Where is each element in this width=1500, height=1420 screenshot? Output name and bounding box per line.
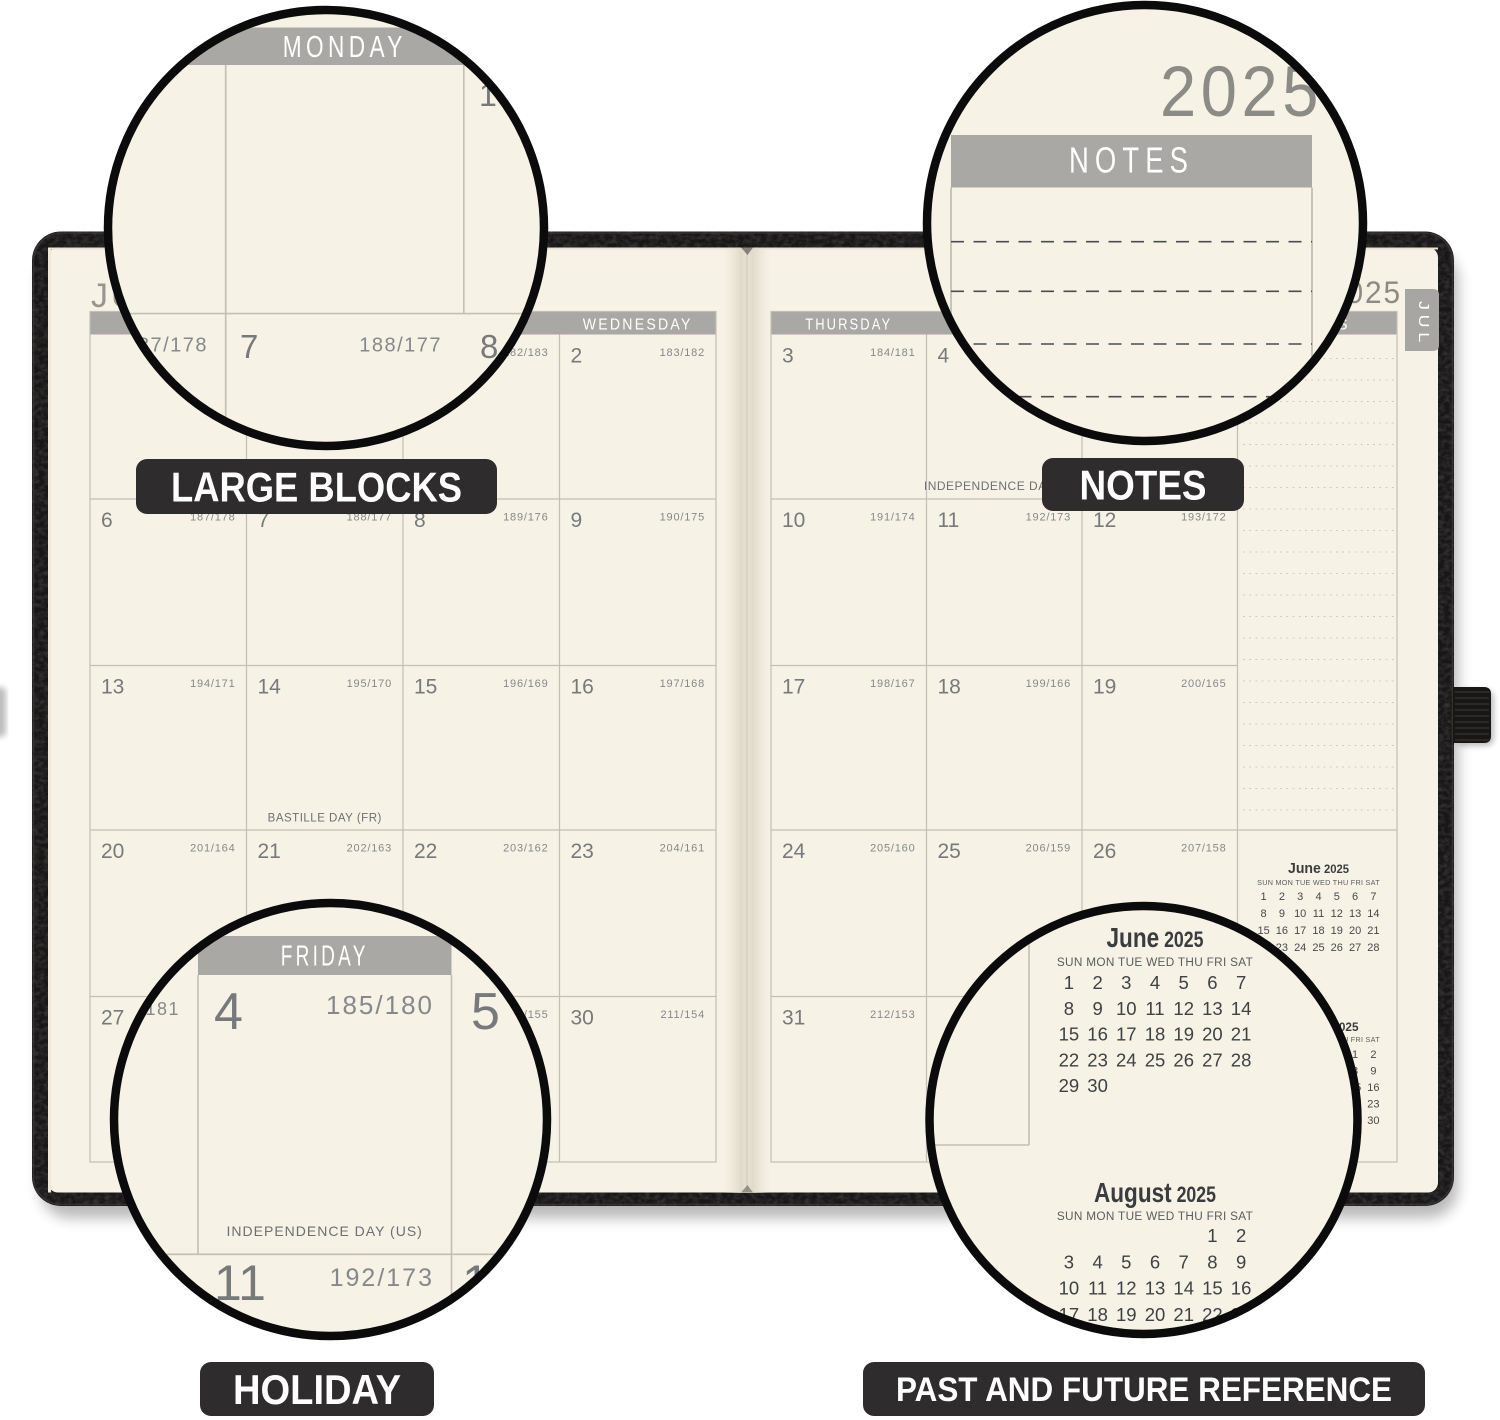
svg-text:21: 21 (1231, 1024, 1252, 1045)
svg-text:25: 25 (938, 840, 961, 863)
svg-text:NOTES: NOTES (1080, 462, 1207, 509)
svg-text:201/164: 201/164 (190, 843, 235, 855)
svg-text:193/172: 193/172 (1181, 512, 1226, 524)
svg-text:28: 28 (1231, 1049, 1252, 1070)
svg-text:14: 14 (1367, 908, 1379, 920)
svg-text:1: 1 (1207, 1225, 1217, 1246)
svg-text:June 2025: June 2025 (1107, 922, 1204, 953)
svg-text:8: 8 (1261, 908, 1267, 920)
svg-text:18: 18 (938, 676, 961, 699)
svg-text:21: 21 (258, 840, 281, 863)
svg-text:11: 11 (938, 509, 960, 532)
svg-text:4: 4 (214, 983, 243, 1041)
svg-text:27: 27 (1202, 1049, 1223, 1070)
svg-text:SUN MON TUE WED THU FRI SAT: SUN MON TUE WED THU FRI SAT (1257, 878, 1380, 887)
svg-text:1: 1 (1064, 972, 1074, 993)
svg-text:11: 11 (1313, 908, 1324, 920)
svg-text:10: 10 (1116, 998, 1137, 1019)
svg-text:21: 21 (1173, 1304, 1194, 1325)
svg-text:24: 24 (782, 840, 806, 863)
svg-text:19: 19 (1331, 925, 1343, 937)
svg-text:12: 12 (1331, 908, 1343, 920)
svg-text:12: 12 (1116, 1278, 1137, 1299)
svg-text:2: 2 (1236, 1225, 1246, 1246)
svg-text:3: 3 (782, 345, 794, 368)
svg-text:INDEPENDENCE DAY (US): INDEPENDENCE DAY (US) (227, 1223, 423, 1239)
svg-text:13: 13 (1202, 998, 1223, 1019)
svg-text:195/170: 195/170 (347, 678, 392, 690)
svg-text:15: 15 (1202, 1278, 1223, 1299)
svg-text:19: 19 (1093, 676, 1116, 699)
svg-text:189/176: 189/176 (503, 512, 548, 524)
svg-text:WEDNESDAY: WEDNESDAY (583, 317, 693, 334)
svg-text:22: 22 (1059, 1049, 1080, 1070)
svg-text:192/173: 192/173 (330, 1264, 434, 1292)
svg-text:17: 17 (782, 676, 805, 699)
svg-text:18: 18 (1145, 1024, 1166, 1045)
svg-text:11: 11 (1088, 1278, 1107, 1299)
svg-text:MONDAY: MONDAY (283, 29, 407, 64)
svg-text:16: 16 (571, 676, 594, 699)
svg-text:6: 6 (1352, 891, 1358, 903)
svg-text:5: 5 (1121, 1251, 1131, 1272)
svg-text:13: 13 (1145, 1278, 1166, 1299)
svg-text:6: 6 (1150, 1251, 1160, 1272)
svg-text:PAST AND FUTURE REFERENCE: PAST AND FUTURE REFERENCE (896, 1371, 1392, 1409)
svg-text:16: 16 (1231, 1278, 1252, 1299)
svg-text:2: 2 (1370, 1049, 1376, 1061)
svg-text:10: 10 (782, 509, 805, 532)
svg-text:184/181: 184/181 (870, 347, 915, 359)
svg-text:23: 23 (571, 840, 594, 863)
svg-text:10: 10 (1294, 908, 1306, 920)
svg-text:16: 16 (1367, 1082, 1379, 1094)
svg-text:197/168: 197/168 (660, 678, 705, 690)
svg-text:26: 26 (1093, 840, 1116, 863)
svg-text:8: 8 (1207, 1251, 1217, 1272)
svg-text:7: 7 (1370, 891, 1376, 903)
svg-text:FRIDAY: FRIDAY (281, 941, 369, 973)
svg-text:196/169: 196/169 (503, 678, 548, 690)
svg-text:SUN MON TUE WED THU FRI SAT: SUN MON TUE WED THU FRI SAT (1057, 1211, 1253, 1223)
svg-text:3: 3 (1121, 972, 1131, 993)
svg-text:4: 4 (1092, 1251, 1102, 1272)
svg-text:3: 3 (1297, 891, 1303, 903)
svg-text:21: 21 (1367, 925, 1379, 937)
svg-text:207/158: 207/158 (1181, 843, 1226, 855)
svg-text:25: 25 (1312, 942, 1324, 954)
svg-text:203/162: 203/162 (503, 843, 548, 855)
svg-text:202/163: 202/163 (347, 843, 392, 855)
svg-text:4: 4 (1150, 972, 1160, 993)
svg-text:7: 7 (240, 328, 258, 365)
svg-text:212/153: 212/153 (870, 1009, 915, 1021)
svg-text:11: 11 (1145, 998, 1164, 1019)
svg-text:14: 14 (1231, 998, 1252, 1019)
svg-text:20: 20 (101, 840, 124, 863)
svg-text:3: 3 (1064, 1251, 1074, 1272)
svg-text:194/171: 194/171 (190, 678, 235, 690)
svg-text:22: 22 (414, 840, 437, 863)
svg-text:30: 30 (1087, 1075, 1108, 1096)
svg-text:28: 28 (1367, 942, 1379, 954)
svg-text:205/160: 205/160 (870, 843, 915, 855)
svg-text:24: 24 (1294, 942, 1306, 954)
svg-text:18: 18 (1087, 1304, 1108, 1325)
svg-text:206/159: 206/159 (1026, 843, 1071, 855)
svg-text:198/167: 198/167 (870, 678, 915, 690)
svg-text:5: 5 (471, 983, 500, 1041)
svg-text:27: 27 (101, 1007, 124, 1030)
svg-text:31: 31 (782, 1007, 805, 1030)
svg-text:8: 8 (1064, 998, 1074, 1019)
svg-text:25: 25 (1145, 1049, 1166, 1070)
svg-text:9: 9 (571, 509, 583, 532)
svg-text:16: 16 (1276, 925, 1288, 937)
svg-text:7: 7 (1179, 1251, 1189, 1272)
svg-text:7: 7 (1236, 972, 1246, 993)
svg-text:2: 2 (571, 345, 583, 368)
svg-text:6: 6 (101, 509, 113, 532)
svg-text:1: 1 (1261, 891, 1267, 903)
svg-text:30: 30 (1367, 1115, 1379, 1127)
svg-text:17: 17 (1116, 1024, 1137, 1045)
svg-text:16: 16 (1087, 1024, 1108, 1045)
svg-text:183/182: 183/182 (660, 347, 705, 359)
svg-text:9: 9 (1370, 1066, 1376, 1078)
svg-text:5: 5 (1179, 972, 1189, 993)
svg-text:LARGE BLOCKS: LARGE BLOCKS (171, 464, 462, 511)
svg-text:19: 19 (1173, 1024, 1194, 1045)
svg-text:5: 5 (1334, 891, 1340, 903)
svg-text:20: 20 (1145, 1304, 1166, 1325)
svg-text:26: 26 (1173, 1049, 1194, 1070)
svg-text:12: 12 (1173, 998, 1194, 1019)
svg-text:2: 2 (1279, 891, 1285, 903)
svg-text:14: 14 (1173, 1278, 1194, 1299)
svg-text:6: 6 (1207, 972, 1217, 993)
svg-text:199/166: 199/166 (1026, 678, 1071, 690)
svg-text:190/175: 190/175 (660, 512, 705, 524)
svg-text:30: 30 (571, 1007, 594, 1030)
svg-text:23: 23 (1087, 1049, 1108, 1070)
svg-text:17: 17 (1294, 925, 1306, 937)
svg-text:192/173: 192/173 (1026, 512, 1071, 524)
svg-text:4: 4 (1315, 891, 1321, 903)
svg-text:15: 15 (1059, 1024, 1080, 1045)
svg-text:NOTES: NOTES (1069, 140, 1194, 181)
svg-text:191/174: 191/174 (870, 512, 915, 524)
svg-text:13: 13 (101, 676, 124, 699)
svg-text:24: 24 (1116, 1049, 1137, 1070)
svg-text:13: 13 (1349, 908, 1361, 920)
svg-text:185/180: 185/180 (326, 990, 434, 1020)
svg-text:2: 2 (1092, 972, 1102, 993)
svg-text:23: 23 (1367, 1099, 1379, 1111)
svg-text:26: 26 (1331, 942, 1343, 954)
svg-text:JUL: JUL (1415, 301, 1432, 347)
svg-text:4: 4 (938, 345, 950, 368)
svg-text:12: 12 (1093, 509, 1116, 532)
svg-text:August 2025: August 2025 (1094, 1177, 1216, 1208)
svg-text:204/161: 204/161 (660, 843, 705, 855)
svg-text:211/154: 211/154 (660, 1009, 705, 1021)
svg-text:9: 9 (1279, 908, 1285, 920)
svg-text:188/177: 188/177 (359, 334, 442, 356)
svg-text:14: 14 (258, 676, 282, 699)
svg-text:10: 10 (1059, 1278, 1080, 1299)
svg-text:HOLIDAY: HOLIDAY (233, 1366, 401, 1413)
svg-text:29: 29 (1059, 1075, 1080, 1096)
svg-text:20: 20 (1349, 925, 1361, 937)
svg-text:BASTILLE DAY (FR): BASTILLE DAY (FR) (268, 813, 382, 825)
svg-text:18: 18 (1312, 925, 1324, 937)
svg-text:19: 19 (1116, 1304, 1137, 1325)
svg-text:SUN MON TUE WED THU FRI SAT: SUN MON TUE WED THU FRI SAT (1057, 957, 1253, 969)
svg-text:15: 15 (414, 676, 437, 699)
svg-text:9: 9 (1092, 998, 1102, 1019)
svg-text:9: 9 (1236, 1251, 1246, 1272)
svg-text:June 2025: June 2025 (1288, 860, 1349, 877)
svg-text:27: 27 (1349, 942, 1361, 954)
svg-text:20: 20 (1202, 1024, 1223, 1045)
svg-text:THURSDAY: THURSDAY (805, 317, 892, 334)
svg-text:200/165: 200/165 (1181, 678, 1226, 690)
